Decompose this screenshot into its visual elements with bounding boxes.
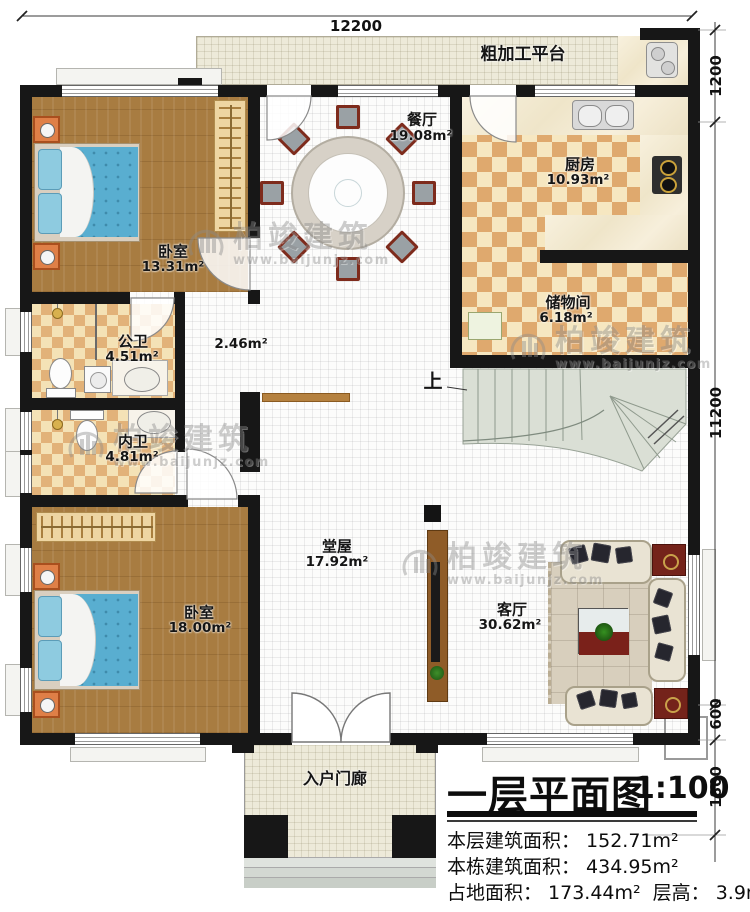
stat-value: 152.71m² bbox=[586, 830, 679, 852]
stat-label: 层高： bbox=[653, 882, 710, 904]
wall-pilaster bbox=[232, 745, 254, 753]
lamp-icon bbox=[40, 698, 55, 713]
kitchen-sink bbox=[572, 100, 634, 130]
dining-chair bbox=[336, 105, 360, 129]
wall bbox=[438, 85, 470, 97]
dining-chair bbox=[260, 181, 284, 205]
porch-column bbox=[244, 815, 288, 858]
wall bbox=[20, 495, 188, 507]
dining-table-center bbox=[334, 179, 362, 207]
window bbox=[688, 555, 700, 655]
room-area-kitchen: 10.93m² bbox=[547, 172, 610, 188]
room-area-dining: 19.08m² bbox=[390, 128, 453, 144]
plant-icon bbox=[430, 666, 444, 680]
room-area-storage: 6.18m² bbox=[539, 310, 592, 326]
dim-right-offset: 600 bbox=[707, 698, 725, 729]
toilet-tank bbox=[46, 388, 76, 398]
wall bbox=[688, 655, 700, 745]
toilet-icon bbox=[49, 358, 72, 389]
half-wall-shelf bbox=[262, 393, 350, 402]
bed-pillow bbox=[38, 640, 62, 681]
ceiling-lamp-icon bbox=[52, 308, 63, 319]
room-area-bedroom1: 13.31m² bbox=[142, 259, 205, 275]
wall bbox=[20, 592, 32, 668]
wall bbox=[248, 495, 260, 733]
dining-chair bbox=[336, 257, 360, 281]
plant-icon bbox=[595, 623, 613, 641]
window bbox=[20, 455, 32, 493]
sofa-pillow bbox=[615, 546, 633, 564]
platform-sink bbox=[646, 42, 678, 78]
lamp-icon bbox=[40, 250, 55, 265]
bed-pillow bbox=[38, 193, 62, 234]
window bbox=[338, 85, 438, 97]
plan-scale: 1:100 bbox=[634, 771, 730, 806]
room-label-dining: 餐厅 bbox=[407, 109, 437, 130]
room-area-bath-private: 4.81m² bbox=[105, 449, 158, 465]
stairs-up-label: 上 bbox=[423, 367, 442, 394]
dining-chair bbox=[412, 181, 436, 205]
stat-value: 434.95m² bbox=[586, 856, 679, 878]
wall bbox=[248, 290, 260, 304]
stat-value: 3.9m bbox=[716, 882, 750, 904]
porch-step bbox=[244, 877, 436, 888]
stat-value: 173.44m² bbox=[548, 882, 641, 904]
ceiling-lamp-icon bbox=[52, 419, 63, 430]
wall bbox=[20, 292, 130, 304]
toilet-icon bbox=[76, 420, 98, 451]
nightstand bbox=[33, 243, 60, 270]
wall bbox=[390, 733, 487, 745]
window bbox=[20, 412, 32, 450]
window-sill bbox=[482, 747, 639, 762]
room-label-porch: 入户门廊 bbox=[303, 765, 367, 789]
wall bbox=[248, 85, 260, 238]
window bbox=[75, 733, 200, 745]
structural-column bbox=[424, 505, 441, 522]
sink-counter bbox=[112, 360, 168, 396]
window-sill bbox=[70, 747, 206, 762]
sink-basin bbox=[578, 105, 602, 127]
stat-floor-area: 本层建筑面积：152.71m² bbox=[447, 826, 679, 853]
washer-door bbox=[90, 372, 107, 389]
porch-column bbox=[392, 815, 436, 858]
storage-cabinet bbox=[468, 312, 502, 340]
wall bbox=[175, 292, 185, 452]
wall bbox=[540, 250, 688, 263]
wall bbox=[20, 398, 180, 410]
table-medallion bbox=[663, 554, 679, 570]
sink-basin bbox=[661, 61, 675, 75]
stat-label: 占地面积： bbox=[447, 882, 542, 904]
window-sill bbox=[5, 451, 21, 497]
room-area-living: 30.62m² bbox=[479, 617, 542, 633]
wall bbox=[688, 28, 700, 555]
bed-pillow bbox=[38, 596, 62, 637]
window bbox=[487, 733, 633, 745]
sofa-pillow bbox=[591, 543, 612, 564]
sofa-pillow bbox=[599, 689, 618, 708]
stat-building-area: 本栋建筑面积：434.95m² bbox=[447, 852, 679, 879]
sink-basin bbox=[651, 47, 665, 61]
wardrobe-rod bbox=[230, 105, 232, 229]
dim-right-platform: 1200 bbox=[707, 55, 725, 97]
window bbox=[62, 85, 218, 97]
lamp-icon bbox=[40, 123, 55, 138]
sink-basin bbox=[605, 105, 629, 127]
window-sill bbox=[5, 408, 21, 454]
bed-pillow bbox=[38, 149, 62, 190]
window bbox=[20, 312, 32, 352]
coffee-table bbox=[578, 608, 628, 654]
wall bbox=[20, 733, 75, 745]
wall bbox=[20, 85, 32, 312]
table-medallion bbox=[665, 697, 681, 713]
nightstand bbox=[33, 116, 60, 143]
stat-label: 本栋建筑面积： bbox=[447, 856, 580, 878]
nightstand bbox=[33, 691, 60, 718]
window-sill bbox=[5, 664, 21, 716]
room-area-hall: 17.92m² bbox=[306, 554, 369, 570]
nightstand bbox=[33, 563, 60, 590]
stove-icon bbox=[652, 156, 682, 194]
wall bbox=[200, 733, 292, 745]
wardrobe bbox=[36, 512, 156, 542]
sink-basin bbox=[124, 367, 160, 392]
title-underline-thin bbox=[447, 820, 697, 822]
dim-right-main: 11200 bbox=[707, 387, 725, 439]
room-area-hallway: 2.46m² bbox=[214, 336, 267, 352]
end-table bbox=[652, 544, 686, 576]
window bbox=[535, 85, 635, 97]
window-sill bbox=[5, 544, 21, 596]
dim-top-width: 12200 bbox=[330, 17, 382, 35]
bath-partition bbox=[95, 304, 97, 360]
wall bbox=[450, 355, 688, 368]
wall-pilaster bbox=[416, 745, 438, 753]
stat-footprint-height: 占地面积：173.44m² 层高：3.9m bbox=[447, 878, 750, 905]
burner bbox=[660, 177, 677, 193]
washing-machine-icon bbox=[84, 366, 111, 393]
wall bbox=[516, 85, 535, 97]
wardrobe-rod bbox=[41, 526, 153, 528]
sofa-pillow bbox=[621, 692, 638, 709]
lamp-icon bbox=[40, 570, 55, 585]
stat-label: 本层建筑面积： bbox=[447, 830, 580, 852]
wall bbox=[240, 392, 260, 472]
wall bbox=[311, 85, 338, 97]
window-sill bbox=[5, 308, 21, 356]
burner bbox=[660, 160, 677, 176]
window bbox=[20, 548, 32, 592]
kitchen-counter-bottom bbox=[545, 215, 688, 250]
room-area-bedroom2: 18.00m² bbox=[169, 620, 232, 636]
room-area-bath-public: 4.51m² bbox=[105, 349, 158, 365]
window-sill bbox=[702, 549, 716, 661]
end-table bbox=[654, 688, 688, 719]
window bbox=[20, 668, 32, 712]
title-underline bbox=[447, 811, 697, 817]
wall bbox=[633, 733, 700, 745]
floor-plan-canvas: 柏竣建筑www.baijunjz.com 柏竣建筑www.baijunjz.co… bbox=[0, 0, 750, 912]
wardrobe bbox=[214, 100, 246, 232]
sofa-pillow bbox=[651, 614, 671, 634]
room-label-platform: 粗加工平台 bbox=[481, 40, 566, 65]
tv-icon bbox=[431, 562, 440, 662]
room-floor-platform bbox=[196, 36, 688, 85]
toilet-tank bbox=[70, 410, 104, 420]
